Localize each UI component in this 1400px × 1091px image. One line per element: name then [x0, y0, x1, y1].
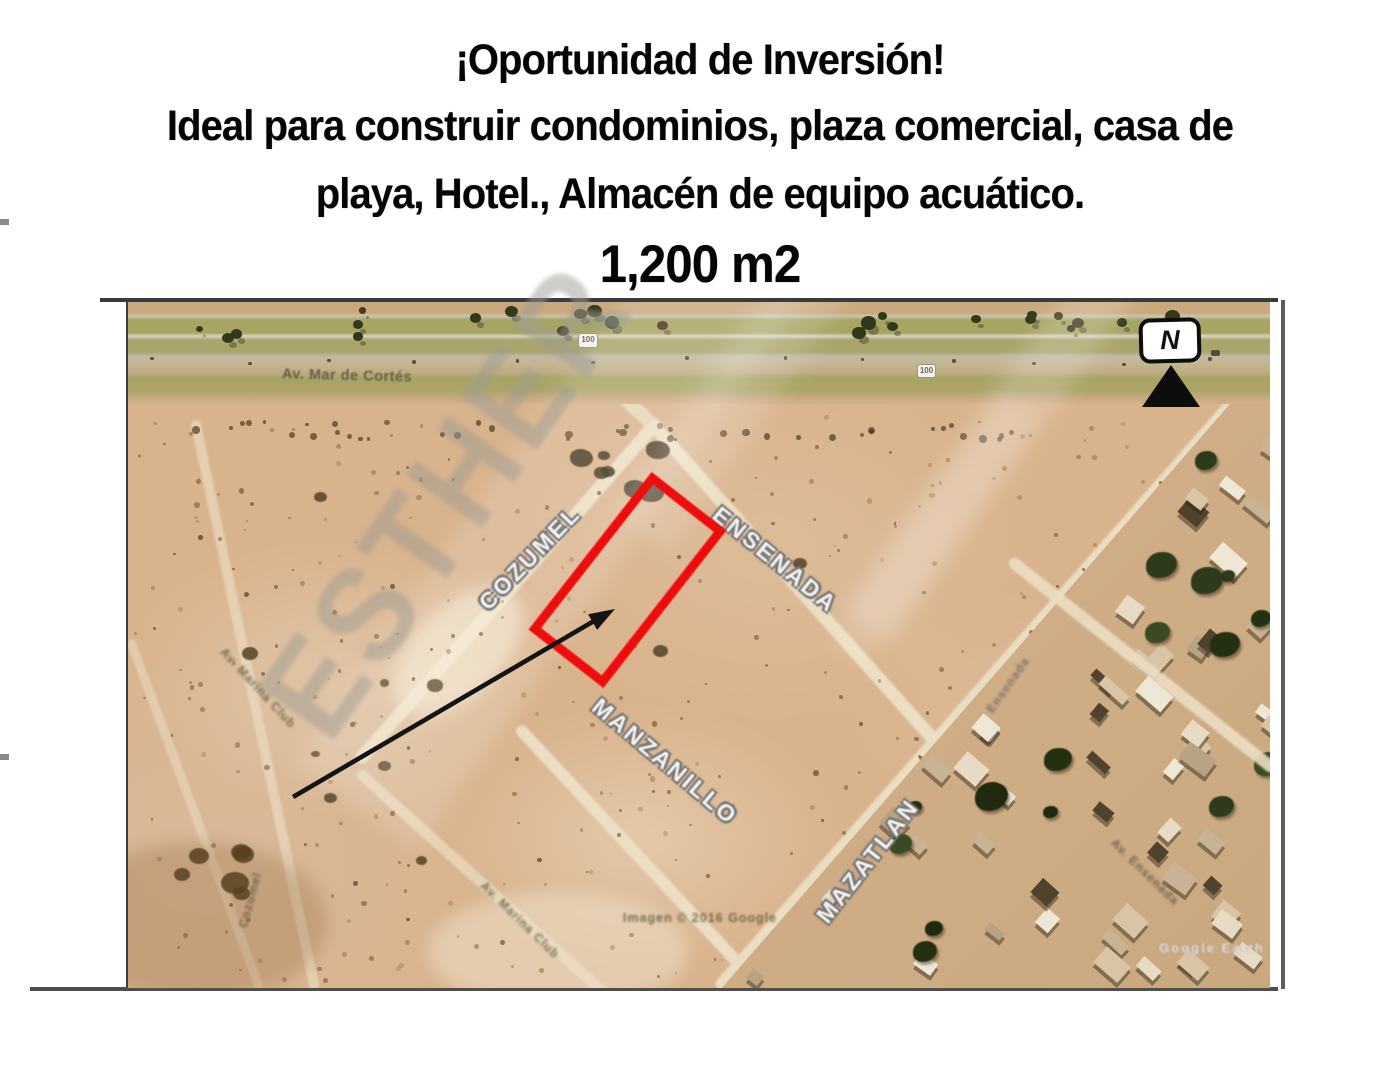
headline-line1: ¡Oportunidad de Inversión! [49, 36, 1351, 85]
edge-dash-top [0, 219, 9, 225]
map-annotations: Av. Mar de Cortés COZUMEL ENSENADA MANZA… [128, 302, 1270, 988]
flyer-page: { "header": { "line1": "¡Oportunidad de … [0, 0, 1400, 1091]
satellite-map: 100 100 ESTHER Av. Mar de Cortés COZUMEL… [128, 302, 1270, 988]
compass-north-box: N [1138, 317, 1201, 364]
pointer-arrow [128, 302, 1270, 988]
headline-line2: Ideal para construir condominios, plaza … [49, 102, 1351, 151]
compass-north-label: N [1160, 325, 1180, 356]
edge-dash-bottom [0, 754, 9, 760]
map-frame-right-line [1281, 300, 1285, 989]
headline-area: 1,200 m2 [49, 234, 1351, 295]
headline-line3: playa, Hotel., Almacén de equipo acuátic… [49, 170, 1351, 219]
